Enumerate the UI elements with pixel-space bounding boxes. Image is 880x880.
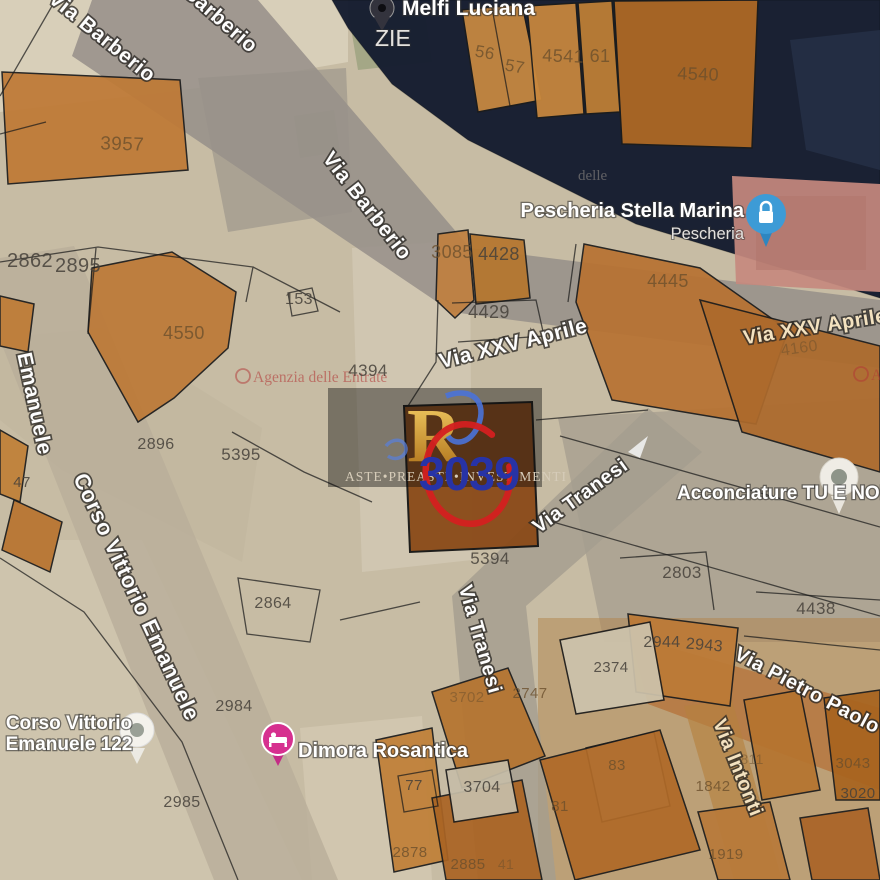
parcel-number: 3085 — [431, 242, 473, 262]
parcel-number: 81 — [551, 798, 569, 815]
parcel-number: 2803 — [662, 563, 701, 582]
agency-watermark-partial: Agenzia — [871, 367, 880, 384]
parcel-number: 83 — [608, 757, 626, 774]
parcel-number: 1919 — [709, 846, 744, 863]
parcel-number: 56 — [474, 42, 497, 64]
poi-label[interactable]: Dimora Rosantica — [298, 740, 469, 762]
parcel-number: 57 — [504, 56, 527, 78]
lock-icon — [759, 211, 773, 223]
parcel-number: 3043 — [836, 755, 871, 772]
bed-icon — [271, 732, 276, 737]
cadastral-satellite-map[interactable]: R ASTE•PREASTE•INVESTIMENTI 3039 Agenzia… — [0, 0, 880, 880]
poi-label[interactable]: Acconciature TU E NOI — [677, 483, 880, 504]
poi-label-line1[interactable]: Corso Vittorio — [6, 713, 132, 734]
parcel-number: 5394 — [470, 549, 509, 568]
parcel-number: 4428 — [478, 244, 520, 264]
parcel-number: 5395 — [221, 445, 260, 464]
poi-label-line2[interactable]: Emanuele 122 — [6, 734, 133, 755]
poi-label-zie: ZIE — [375, 25, 411, 51]
parcel-number: 3702 — [450, 689, 485, 706]
bed-icon — [285, 743, 288, 747]
parcel-number: 2985 — [163, 794, 200, 811]
parcel-number: 2864 — [254, 595, 291, 612]
poi-label[interactable]: Pescheria Stella Marina — [521, 200, 745, 222]
parcel-number: 153 — [285, 291, 313, 308]
parcel-number: 4541 — [542, 45, 584, 66]
lot-number: 3039 — [419, 447, 520, 500]
map-canvas[interactable]: R ASTE•PREASTE•INVESTIMENTI 3039 Agenzia… — [0, 0, 880, 880]
parcel-number: 3704 — [463, 779, 500, 796]
bed-icon — [269, 737, 287, 743]
parcel-number: 2885 — [451, 856, 486, 873]
parcel-number: 4438 — [796, 599, 835, 618]
parcel-number: 41 — [498, 856, 514, 872]
parcel-number: 2747 — [513, 685, 548, 702]
building-parcel — [2, 72, 188, 184]
parcel-number: 4394 — [348, 361, 387, 380]
parcel-number: 2878 — [393, 844, 428, 861]
parcel-number: 4445 — [647, 271, 689, 291]
parcel-number: 4540 — [677, 63, 719, 84]
parcel-number: 2374 — [594, 659, 629, 676]
bed-icon — [269, 743, 272, 747]
building-parcel — [0, 296, 34, 352]
parcel-number: 4550 — [163, 323, 205, 343]
building-parcel — [800, 808, 880, 880]
poi-sublabel: Pescheria — [671, 225, 745, 243]
parcel-number: 2984 — [215, 698, 252, 715]
parcel-number: 2896 — [137, 436, 174, 453]
parcel-number: 47 — [13, 474, 31, 491]
parcel-number: 2943 — [685, 635, 724, 655]
parcel-number: 3020 — [841, 785, 876, 802]
parcel-number: 4429 — [468, 302, 510, 322]
poi-label[interactable]: Melfi Luciana — [402, 0, 535, 20]
parcel-number: 61 — [590, 46, 611, 66]
parcel-number: 2862 — [7, 250, 53, 272]
parcel-number: 3957 — [100, 133, 145, 156]
parcel-number: 2944 — [643, 634, 680, 651]
location-pin-icon — [378, 4, 386, 12]
parcel-number: 1842 — [696, 778, 731, 795]
agency-watermark-partial: delle — [578, 168, 607, 184]
parcel-number: 77 — [405, 777, 423, 794]
parcel-number: 2895 — [55, 255, 101, 277]
